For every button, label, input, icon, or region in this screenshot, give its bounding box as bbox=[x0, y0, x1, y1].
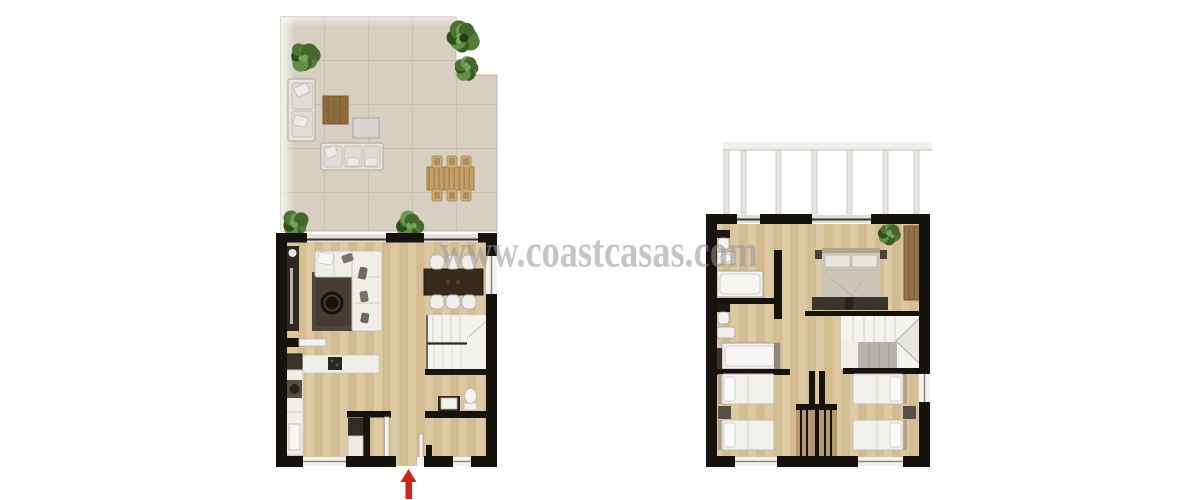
svg-text:www.coastcasas.com: www.coastcasas.com bbox=[440, 226, 758, 278]
